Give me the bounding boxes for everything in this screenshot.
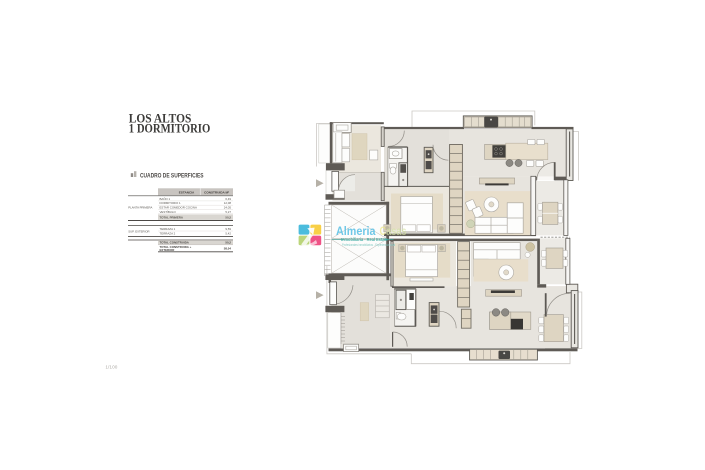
svg-text:TERRAZA 1: TERRAZA 1 (160, 227, 176, 231)
svg-text:1/100: 1/100 (106, 365, 118, 370)
svg-text:Profesionales inmobiliarios -: Profesionales inmobiliarios - Experienci… (342, 243, 395, 247)
svg-text:TERRAZA 2: TERRAZA 2 (160, 232, 176, 236)
svg-text:50,2: 50,2 (225, 216, 231, 220)
svg-text:PLANTA PRIMERA: PLANTA PRIMERA (128, 206, 152, 210)
svg-text:VESTÍBULO: VESTÍBULO (160, 210, 177, 214)
svg-text:9,59: 9,59 (225, 227, 231, 231)
svg-text:1 DORMITORIO: 1 DORMITORIO (129, 122, 211, 136)
svg-text:CONSTRUIDA M²: CONSTRUIDA M² (204, 190, 229, 194)
svg-text:5,42: 5,42 (225, 232, 231, 236)
svg-text:TOTAL PRIMERA: TOTAL PRIMERA (160, 216, 184, 220)
svg-text:EXTERIOR: EXTERIOR (160, 248, 176, 252)
svg-text:Casas: Casas (380, 224, 407, 238)
svg-text:5,27: 5,27 (225, 210, 231, 214)
svg-text:50,2: 50,2 (225, 241, 231, 245)
svg-text:SUP. EXTERIOR: SUP. EXTERIOR (128, 230, 149, 234)
svg-text:58,04: 58,04 (224, 247, 232, 251)
svg-text:BAÑO 1: BAÑO 1 (160, 196, 171, 201)
svg-text:Almeria: Almeria (336, 224, 376, 238)
svg-text:CUADRO DE SUPERFICIES: CUADRO DE SUPERFICIES (140, 172, 204, 179)
svg-text:ESTANCIA: ESTANCIA (179, 190, 195, 194)
svg-text:Inmobiliaria - Real Estate: Inmobiliaria - Real Estate (341, 237, 389, 242)
